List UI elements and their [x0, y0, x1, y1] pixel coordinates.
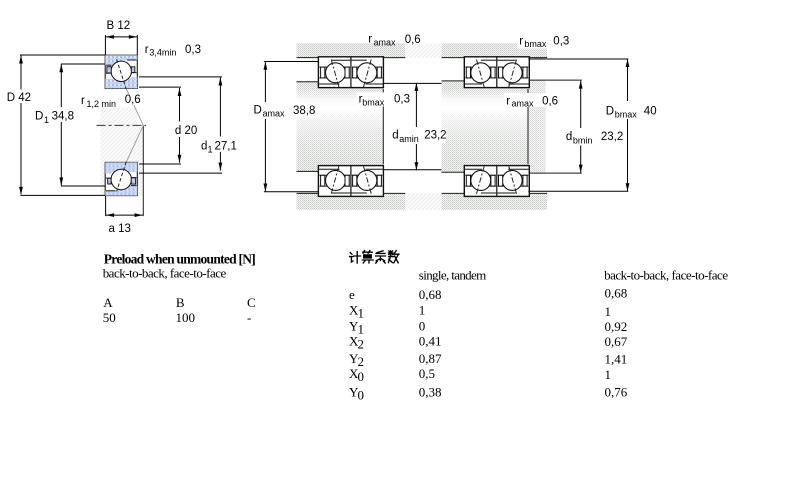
svg-text:0,6: 0,6	[542, 95, 558, 107]
svg-text:d: d	[392, 130, 398, 142]
svg-text:single, tandem: single, tandem	[419, 268, 487, 283]
svg-text:bmin: bmin	[573, 136, 593, 146]
svg-text:50: 50	[103, 310, 116, 325]
svg-text:d: d	[566, 131, 572, 143]
svg-text:amax: amax	[263, 109, 286, 119]
svg-text:0: 0	[419, 319, 426, 334]
svg-text:0,41: 0,41	[419, 334, 442, 349]
svg-text:2: 2	[358, 354, 365, 369]
svg-text:amin: amin	[399, 134, 419, 144]
svg-text:0,68: 0,68	[605, 286, 628, 301]
svg-text:0,6: 0,6	[125, 94, 141, 106]
svg-text:1,41: 1,41	[605, 352, 628, 367]
svg-text:bmax: bmax	[524, 39, 547, 49]
svg-text:D: D	[35, 111, 43, 123]
svg-text:0,68: 0,68	[419, 287, 442, 302]
svg-text:B: B	[176, 295, 185, 310]
svg-text:A: A	[103, 295, 113, 310]
svg-text:27,1: 27,1	[215, 140, 237, 152]
svg-text:0,92: 0,92	[605, 319, 628, 334]
svg-text:r: r	[368, 34, 372, 46]
svg-text:1: 1	[208, 145, 213, 155]
svg-text:bmax: bmax	[362, 98, 385, 108]
svg-text:0: 0	[358, 369, 365, 384]
svg-text:0,76: 0,76	[605, 385, 628, 400]
svg-text:0,3: 0,3	[185, 44, 201, 56]
svg-text:1: 1	[419, 302, 426, 317]
svg-text:0,5: 0,5	[419, 366, 435, 381]
svg-text:r: r	[81, 95, 85, 107]
svg-text:D: D	[606, 106, 614, 118]
svg-text:0,3: 0,3	[553, 36, 569, 48]
svg-text:2: 2	[358, 337, 365, 352]
svg-text:3,4min: 3,4min	[149, 48, 176, 58]
svg-text:B 12: B 12	[107, 20, 131, 32]
svg-text:0,38: 0,38	[419, 385, 442, 400]
svg-text:0,3: 0,3	[394, 94, 410, 106]
svg-text:1: 1	[358, 322, 365, 337]
svg-text:r: r	[519, 36, 523, 48]
svg-text:34,8: 34,8	[52, 111, 74, 123]
svg-text:0,6: 0,6	[405, 34, 421, 46]
svg-text:d: d	[201, 140, 207, 152]
svg-text:r: r	[506, 95, 510, 107]
svg-text:D 42: D 42	[7, 92, 31, 104]
svg-text:1: 1	[605, 304, 612, 319]
svg-text:1: 1	[605, 367, 612, 382]
svg-text:1: 1	[44, 115, 49, 125]
svg-text:23,2: 23,2	[424, 130, 446, 142]
svg-text:back-to-back, face-to-face: back-to-back, face-to-face	[103, 265, 227, 280]
svg-text:bmax: bmax	[615, 110, 638, 120]
svg-text:C: C	[247, 295, 256, 310]
svg-text:-: -	[247, 310, 251, 325]
svg-text:0: 0	[358, 388, 365, 403]
svg-text:d 20: d 20	[175, 125, 197, 137]
svg-text:Preload when unmounted [N]: Preload when unmounted [N]	[104, 252, 256, 267]
svg-text:40: 40	[644, 106, 657, 118]
svg-text:r: r	[145, 44, 149, 56]
svg-text:0,87: 0,87	[419, 351, 442, 366]
svg-text:D: D	[254, 105, 262, 117]
svg-text:e: e	[349, 287, 355, 302]
svg-text:amax: amax	[374, 37, 397, 47]
svg-text:1: 1	[358, 306, 365, 321]
svg-text:100: 100	[176, 310, 196, 325]
svg-text:23,2: 23,2	[601, 131, 623, 143]
svg-text:a 13: a 13	[109, 223, 131, 235]
svg-text:1,2 min: 1,2 min	[87, 99, 117, 109]
svg-text:0,67: 0,67	[605, 334, 628, 349]
svg-text:amax: amax	[512, 99, 535, 109]
svg-text:38,8: 38,8	[293, 105, 315, 117]
svg-text:back-to-back, face-to-face: back-to-back, face-to-face	[604, 268, 728, 283]
